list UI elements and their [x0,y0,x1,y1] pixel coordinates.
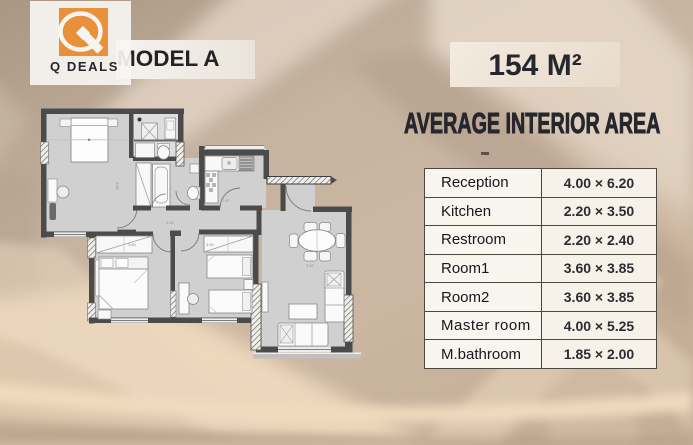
svg-text:1.67: 1.67 [306,263,315,268]
svg-text:1.10: 1.10 [166,220,175,225]
svg-text:3.60: 3.60 [128,242,137,247]
svg-text:4.60: 4.60 [115,182,120,191]
svg-text:7.47: 7.47 [222,198,231,203]
svg-text:3.60: 3.60 [206,242,215,247]
